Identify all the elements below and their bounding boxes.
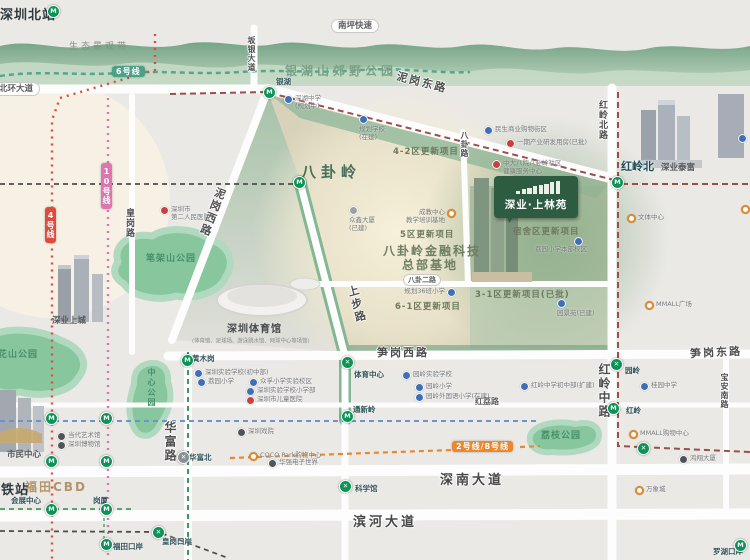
poi-dot-icon	[506, 139, 515, 148]
road-bagua-2nd: 八卦二路	[403, 274, 441, 286]
poi-dot-icon	[284, 95, 293, 104]
label-overlay: 深业·上林苑 南坪快速北环大道坂银大道泥岗东路泥岗西路皇岗路红岭北路八卦路八卦二…	[0, 0, 750, 560]
icon-futiankouan: M	[100, 538, 113, 551]
road-shennan-avenue: 深南大道	[440, 469, 504, 488]
shenzhen-gymnasium: 深圳体育馆	[227, 320, 282, 335]
station-huanggangkouan: 皇岗口岸	[162, 536, 192, 547]
poi-hq-electronics: 华强电子世界	[268, 459, 318, 468]
poi-dot-icon	[349, 206, 358, 215]
road-hongling-north: 红岭北路	[596, 100, 609, 140]
poi-dot-icon	[640, 382, 649, 391]
poi-hongling-junior: 红岭中学初中部(扩建)	[520, 382, 595, 391]
poi-dot-icon	[237, 428, 246, 437]
station-huafubei: 华富北	[189, 452, 212, 463]
poi-planned-primary36: 规划36班小学	[447, 288, 456, 297]
poi-dot-icon	[447, 288, 456, 297]
poi-dot-icon	[635, 486, 644, 495]
station-tiyuzhongxin: 体育中心	[354, 369, 384, 380]
road-banyin-avenue: 坂银大道	[246, 36, 257, 72]
icon-gangxia: M	[100, 503, 113, 516]
line-4-badge: 4号线	[45, 207, 56, 243]
poi-dot-icon	[415, 383, 424, 392]
poi-mixc: 万象城	[635, 486, 666, 495]
poi-dot-icon	[447, 209, 456, 218]
poi-dot-icon	[246, 387, 255, 396]
poi-dot-icon	[557, 299, 566, 308]
project-dorm: 宿舍区更新项目	[513, 225, 580, 237]
poi-dot-icon	[197, 378, 206, 387]
shenye-upperhills: 深业上城	[52, 314, 86, 326]
poi-wenti-center: 文体中心	[627, 214, 664, 223]
poi-dot-icon	[679, 455, 688, 464]
poi-yuanjingyuan: 园景苑(已建)	[557, 299, 595, 318]
yinhushan-country-park: 银湖山郊野公园	[285, 62, 397, 79]
poi-dot-icon	[268, 459, 277, 468]
line-10-badge: 10号线	[101, 163, 112, 209]
fintech-base-line2: 总部基地	[402, 256, 458, 273]
road-sungang-west: 笋岗西路	[377, 344, 429, 360]
icon-huangmugang: M	[181, 354, 194, 367]
poi-dot-icon	[629, 430, 638, 439]
icon-kexueguan: ✕	[339, 480, 352, 493]
poi-theatre: 深圳戏院	[237, 428, 274, 437]
icon-bagualing: M	[293, 176, 306, 189]
poi-yuanling-fl: 园岭外国语小学(在建)	[415, 393, 490, 402]
icon-tongxinling: M	[341, 410, 354, 423]
poi-dot-icon	[57, 432, 66, 441]
icon-line10-b: M	[100, 455, 113, 468]
shenye-taifu: 深业泰富	[661, 161, 695, 173]
icon-huanggangkouan: ✕	[152, 526, 165, 539]
icon-luohukouan: M	[734, 539, 747, 552]
bagualing-area: 八卦岭	[301, 161, 361, 182]
map-canvas[interactable]: 深业·上林苑 南坪快速北环大道坂银大道泥岗东路泥岗西路皇岗路红岭北路八卦路八卦二…	[0, 0, 750, 560]
poi-zhongxin-tower: 众鑫大厦(已建)	[349, 206, 375, 232]
poi-dot-icon	[738, 134, 747, 143]
poi-dot-icon	[520, 382, 529, 391]
poi-mmall-plaza: MMALL广场	[645, 301, 692, 310]
poi-dot-icon	[484, 126, 493, 135]
icon-honglingbei: M	[611, 176, 624, 189]
icon-huafubei: ✕	[177, 451, 190, 464]
station-kexueguan: 科学馆	[355, 483, 378, 494]
icon-huizhan: M	[45, 503, 58, 516]
station-hongling: 红岭	[626, 405, 641, 416]
line-6-badge: 6号线	[112, 66, 145, 77]
icon-hongli-cross: ✕	[637, 442, 650, 455]
poi-dot-icon	[249, 452, 258, 461]
station-futiankouan: 福田口岸	[113, 541, 143, 552]
station-yuanling: 园岭	[625, 365, 640, 376]
poi-yuanling-primary: 园岭小学	[415, 383, 452, 392]
poi-yuanling-exp: 园岭实验学校	[402, 371, 452, 380]
icon-shenzhenbei: M	[47, 5, 60, 18]
icon-tiyuzhongxin: ✕	[341, 356, 354, 369]
gymnasium-sub: (体育馆、足球场、游泳跳水馆、网球中心等场馆)	[192, 336, 310, 344]
icon-yinhu: M	[263, 86, 276, 99]
poi-edge-1	[738, 134, 749, 143]
poi-liyuan-primary: 荔园小学	[197, 378, 234, 387]
icon-line4-b: M	[45, 455, 58, 468]
lianhuashan-park: 莲花山公园	[0, 347, 38, 360]
road-bagua: 八卦路	[459, 131, 470, 158]
poi-dot-icon	[57, 441, 66, 450]
poi-minsheng-mall: 民生商业购物街区	[484, 126, 547, 135]
poi-guiyuan-middle: 桂园中学	[640, 382, 677, 391]
project-3-1: 3-1区更新项目(已批)	[475, 288, 570, 300]
icon-line10-a: M	[100, 412, 113, 425]
civic-center: 市民中心	[7, 448, 41, 460]
road-nigang-east: 泥岗东路	[395, 68, 449, 96]
icon-yuanling: ✕	[610, 358, 623, 371]
poi-dot-icon	[627, 214, 636, 223]
road-beihuan-avenue: 北环大道	[0, 82, 40, 96]
station-yinhu: 银湖	[276, 76, 291, 87]
station-tongxinling: 通新岭	[353, 404, 376, 415]
poi-phase1-rd: 一期产业研发用房(已批)	[506, 139, 587, 148]
eco-landscape-belt: 生态景观带	[69, 39, 129, 52]
poi-museum: 深圳博物馆	[57, 441, 101, 450]
poi-children-hospital: 深圳市儿童医院	[246, 396, 303, 405]
poi-shenhu-school: 深湖中学(规划中)	[284, 95, 321, 110]
poi-hospital-no2: 深圳市第二人民医院	[160, 206, 210, 221]
poi-dot-icon	[160, 206, 169, 215]
project-5: 5区更新项目	[400, 228, 454, 240]
project-banner: 深业·上林苑	[494, 176, 578, 218]
banner-bars-icon	[516, 181, 560, 194]
poi-dot-icon	[741, 205, 750, 214]
poi-dot-icon	[194, 369, 203, 378]
central-park: 中心公园	[146, 368, 157, 408]
poi-dot-icon	[246, 396, 255, 405]
poi-zhongda-clinic: 中大八院八卦岭社区健康服务中心	[492, 160, 562, 175]
station-huangmugang: 黄木岗	[192, 353, 215, 364]
icon-line4-a: M	[45, 412, 58, 425]
poi-mmall-shopping: MMALL购物中心	[629, 430, 689, 439]
road-baoan-south: 宝安南路	[719, 373, 730, 409]
road-huanggang: 皇岗路	[123, 208, 136, 238]
poi-dot-icon	[492, 160, 501, 169]
lizhi-park: 荔枝公园	[541, 428, 581, 441]
station-honglingbei: 红岭北	[621, 158, 654, 174]
project-6-1: 6-1区更新项目	[395, 300, 461, 312]
project-4-2: 4-2区更新项目	[393, 145, 459, 157]
bijiashan-park: 笔架山公园	[146, 251, 196, 264]
icon-hongling: M	[607, 402, 620, 415]
poi-training-base: 成教中心教学培训基地	[447, 209, 456, 218]
poi-dot-icon	[359, 115, 368, 124]
futian-cbd: 福田CBD	[25, 478, 87, 495]
poi-liyuan-main: 荔园小学本部校区	[574, 237, 583, 246]
road-sungang-east: 笋岗东路	[690, 343, 743, 362]
project-banner-title: 深业·上林苑	[496, 197, 576, 212]
road-shangbu: 上步路	[343, 284, 369, 326]
poi-dot-icon	[645, 301, 654, 310]
line-2-8-badge: 2号线/8号线	[452, 441, 513, 452]
poi-dot-icon	[402, 371, 411, 380]
station-huizhanzhongxin: 会展中心	[11, 495, 41, 506]
poi-dot-icon	[415, 393, 424, 402]
poi-planned-school: 规划学校(在建)	[359, 115, 385, 141]
poi-hongxiang-tower: 鸿翔大厦	[679, 455, 716, 464]
poi-edge-2	[741, 205, 750, 214]
road-binhe-avenue: 滨河大道	[353, 511, 417, 530]
road-nanping-expressway: 南坪快速	[331, 19, 379, 33]
